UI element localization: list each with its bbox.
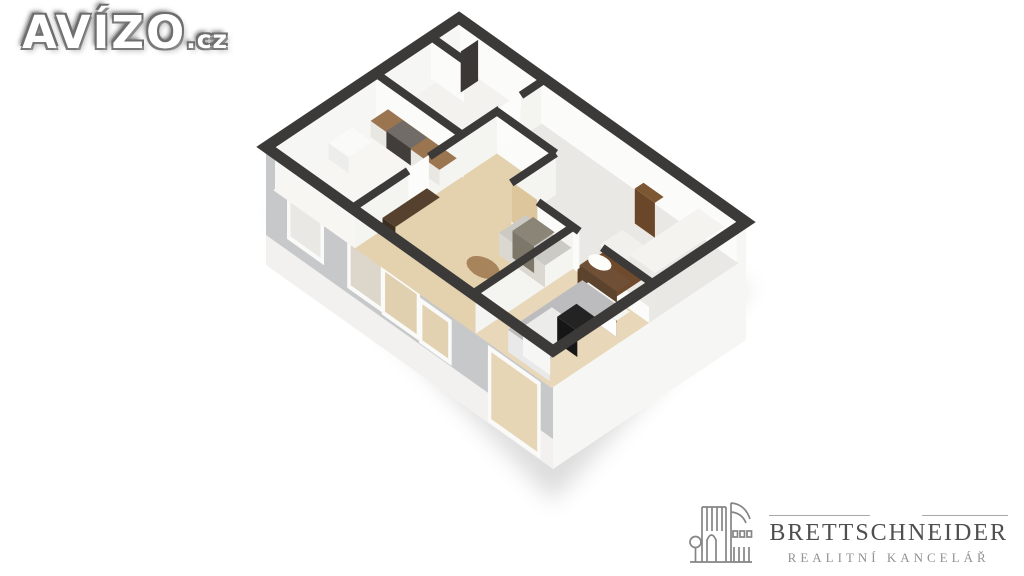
building-with-tree-icon	[687, 495, 755, 572]
icon-window	[740, 531, 745, 537]
agency-logo: BRETTSCHNEIDER REALITNÍ KANCELÁŘ	[687, 495, 1008, 572]
agency-name: BRETTSCHNEIDER	[769, 520, 1008, 547]
agency-subtitle: REALITNÍ KANCELÁŘ	[769, 550, 1008, 566]
icon-window	[733, 531, 738, 537]
logo-rule-left	[769, 515, 869, 517]
logo-rule-right	[922, 515, 1008, 517]
icon-facade-lines	[734, 547, 749, 562]
floorplan-3d-render	[0, 0, 1024, 576]
icon-window	[747, 531, 752, 537]
logo-rules	[769, 515, 1008, 517]
icon-left-tower	[702, 507, 726, 562]
watermark-brand: AVÍZO	[22, 6, 186, 59]
icon-arch-door	[707, 535, 716, 562]
icon-tree-crown	[690, 537, 701, 548]
agency-logo-text: BRETTSCHNEIDER REALITNÍ KANCELÁŘ	[769, 515, 1008, 572]
watermark-tld: .cz	[186, 25, 228, 54]
watermark-logo: AVÍZO.cz	[22, 10, 228, 55]
floorplan-page: { "watermark": { "brand": "AVÍZO", "tld"…	[0, 0, 1024, 576]
